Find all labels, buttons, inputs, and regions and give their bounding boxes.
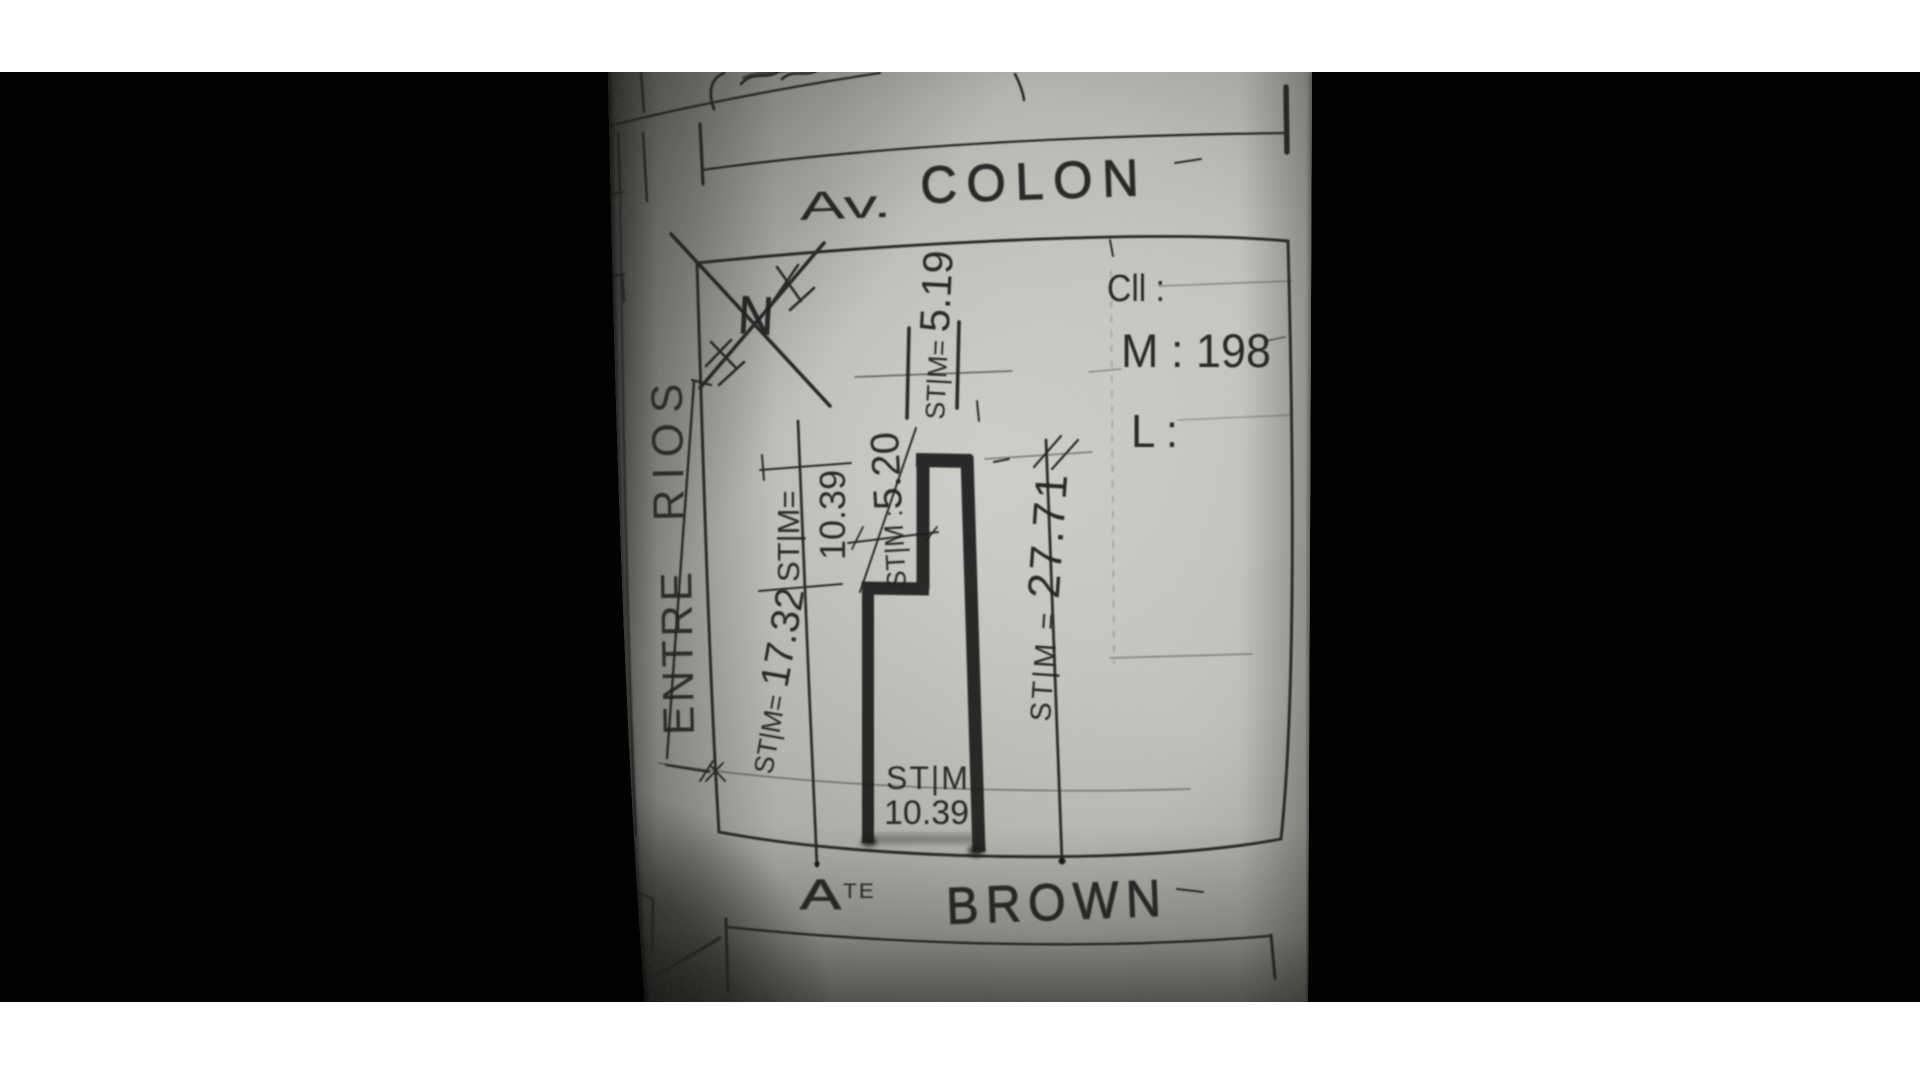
svg-text:RIOS: RIOS bbox=[642, 373, 694, 521]
svg-text:Cll :: Cll : bbox=[1107, 268, 1165, 310]
svg-text:A: A bbox=[800, 871, 841, 919]
svg-text:BROWN: BROWN bbox=[945, 870, 1169, 936]
svg-text:10.39: 10.39 bbox=[812, 470, 853, 560]
svg-text:Av.: Av. bbox=[799, 182, 892, 229]
svg-text:ST|M: ST|M bbox=[886, 760, 970, 796]
svg-text:ENTRE: ENTRE bbox=[652, 568, 704, 735]
svg-text:L :: L : bbox=[1131, 405, 1178, 457]
svg-text:ST|M=: ST|M= bbox=[771, 490, 806, 582]
svg-text:TE: TE bbox=[843, 880, 876, 903]
svg-text:COLON: COLON bbox=[919, 149, 1149, 215]
svg-text:N: N bbox=[736, 285, 775, 347]
svg-text:10.39: 10.39 bbox=[884, 794, 969, 832]
svg-text:M : 198: M : 198 bbox=[1121, 324, 1271, 377]
